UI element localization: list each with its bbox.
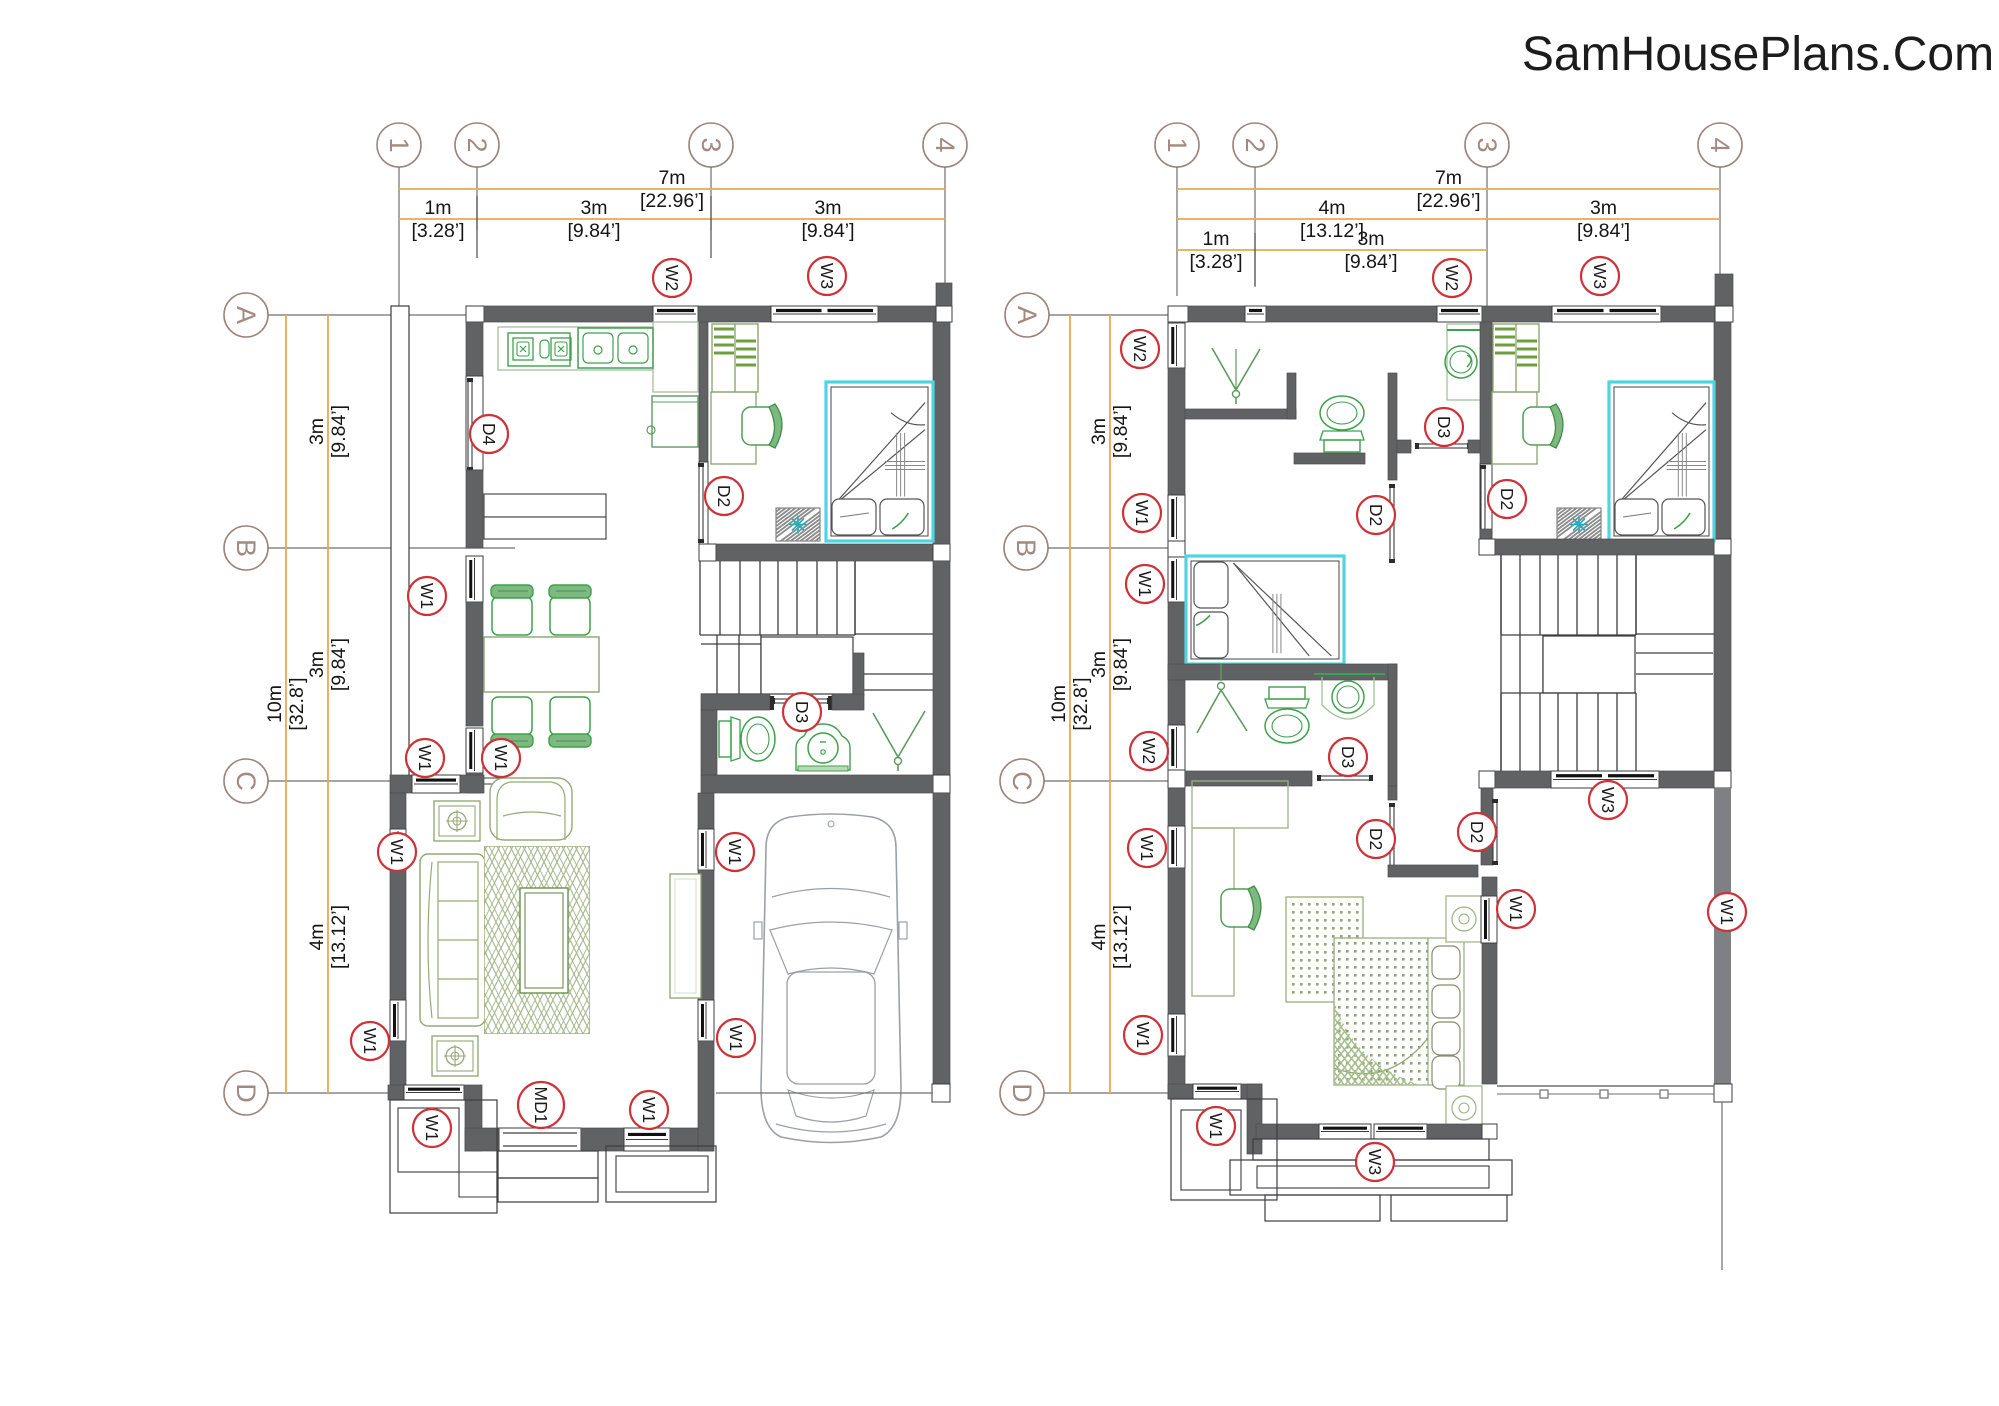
svg-text:[9.84’]: [9.84’] [801, 220, 854, 242]
svg-text:3: 3 [696, 137, 726, 152]
svg-text:1m: 1m [424, 197, 451, 219]
svg-text:[9.84’]: [9.84’] [328, 638, 350, 691]
svg-text:[22.96’]: [22.96’] [1417, 190, 1481, 212]
svg-text:3m: 3m [306, 418, 328, 445]
svg-text:W1: W1 [417, 583, 437, 609]
svg-text:W1: W1 [422, 1115, 442, 1141]
svg-text:[32.8’]: [32.8’] [286, 677, 308, 730]
svg-text:3m: 3m [1590, 197, 1617, 219]
svg-text:W1: W1 [1206, 1113, 1226, 1139]
svg-text:B: B [231, 539, 261, 557]
svg-text:3m: 3m [814, 197, 841, 219]
svg-text:B: B [1011, 539, 1041, 557]
svg-text:W2: W2 [1139, 738, 1159, 764]
svg-text:W1: W1 [1132, 500, 1152, 526]
svg-text:W1: W1 [1506, 896, 1526, 922]
svg-text:1: 1 [1162, 137, 1192, 152]
svg-text:[9.84’]: [9.84’] [567, 220, 620, 242]
svg-text:W2: W2 [662, 265, 682, 291]
svg-text:A: A [231, 306, 261, 324]
svg-text:3m: 3m [306, 651, 328, 678]
svg-text:W1: W1 [360, 1028, 380, 1054]
svg-text:W1: W1 [1717, 899, 1737, 925]
svg-text:W2: W2 [1130, 336, 1150, 362]
svg-text:W1: W1 [415, 745, 435, 771]
svg-text:D: D [231, 1083, 261, 1103]
svg-text:3m: 3m [580, 197, 607, 219]
svg-text:1m: 1m [1202, 228, 1229, 250]
svg-text:[9.84’]: [9.84’] [1577, 220, 1630, 242]
svg-text:[9.84’]: [9.84’] [328, 405, 350, 458]
svg-text:W1: W1 [1137, 835, 1157, 861]
svg-text:D: D [1007, 1083, 1037, 1103]
svg-text:D3: D3 [1338, 746, 1358, 768]
svg-text:[22.96’]: [22.96’] [640, 190, 704, 212]
svg-text:4m: 4m [1318, 197, 1345, 219]
svg-text:W2: W2 [1442, 265, 1462, 291]
svg-text:D2: D2 [1467, 821, 1487, 843]
svg-text:W1: W1 [726, 1025, 746, 1051]
svg-text:4: 4 [1705, 137, 1735, 152]
svg-text:4: 4 [930, 137, 960, 152]
svg-text:C: C [1007, 771, 1037, 791]
svg-text:7m: 7m [658, 167, 685, 189]
svg-text:D2: D2 [1366, 504, 1386, 526]
svg-text:[9.84’]: [9.84’] [1344, 251, 1397, 273]
svg-text:[13.12’]: [13.12’] [1110, 905, 1132, 969]
svg-text:3m: 3m [1088, 418, 1110, 445]
svg-text:[13.12’]: [13.12’] [328, 905, 350, 969]
svg-text:SamHousePlans.Com: SamHousePlans.Com [1522, 28, 1994, 81]
svg-text:MD1: MD1 [531, 1087, 551, 1124]
svg-text:[9.84’]: [9.84’] [1110, 638, 1132, 691]
svg-text:4m: 4m [1088, 923, 1110, 950]
svg-text:D3: D3 [1434, 416, 1454, 438]
svg-text:2: 2 [1240, 137, 1270, 152]
svg-text:W3: W3 [817, 263, 837, 289]
svg-text:D2: D2 [1497, 488, 1517, 510]
svg-text:10m: 10m [264, 685, 286, 723]
svg-text:W3: W3 [1590, 263, 1610, 289]
svg-text:W1: W1 [387, 839, 407, 865]
svg-text:W1: W1 [639, 1097, 659, 1123]
svg-text:W1: W1 [725, 839, 745, 865]
svg-text:10m: 10m [1048, 685, 1070, 723]
svg-text:D4: D4 [479, 423, 499, 446]
svg-text:D2: D2 [714, 485, 734, 507]
svg-text:W3: W3 [1598, 787, 1618, 813]
svg-text:3m: 3m [1088, 651, 1110, 678]
svg-text:W3: W3 [1365, 1149, 1385, 1175]
svg-text:7m: 7m [1435, 167, 1462, 189]
svg-text:[3.28’]: [3.28’] [411, 220, 464, 242]
svg-text:[32.8’]: [32.8’] [1070, 677, 1092, 730]
svg-text:3: 3 [1472, 137, 1502, 152]
svg-text:D3: D3 [792, 701, 812, 723]
svg-text:[9.84’]: [9.84’] [1110, 405, 1132, 458]
svg-text:2: 2 [462, 137, 492, 152]
svg-text:[13.12’]: [13.12’] [1300, 220, 1364, 242]
svg-text:A: A [1012, 306, 1042, 324]
svg-text:C: C [231, 771, 261, 791]
svg-text:W1: W1 [1133, 1022, 1153, 1048]
svg-text:3m: 3m [1357, 228, 1384, 250]
svg-text:1: 1 [384, 137, 414, 152]
svg-text:4m: 4m [306, 923, 328, 950]
svg-text:W1: W1 [1135, 571, 1155, 597]
svg-text:W1: W1 [491, 745, 511, 771]
svg-text:D2: D2 [1366, 828, 1386, 850]
svg-text:[3.28’]: [3.28’] [1189, 251, 1242, 273]
